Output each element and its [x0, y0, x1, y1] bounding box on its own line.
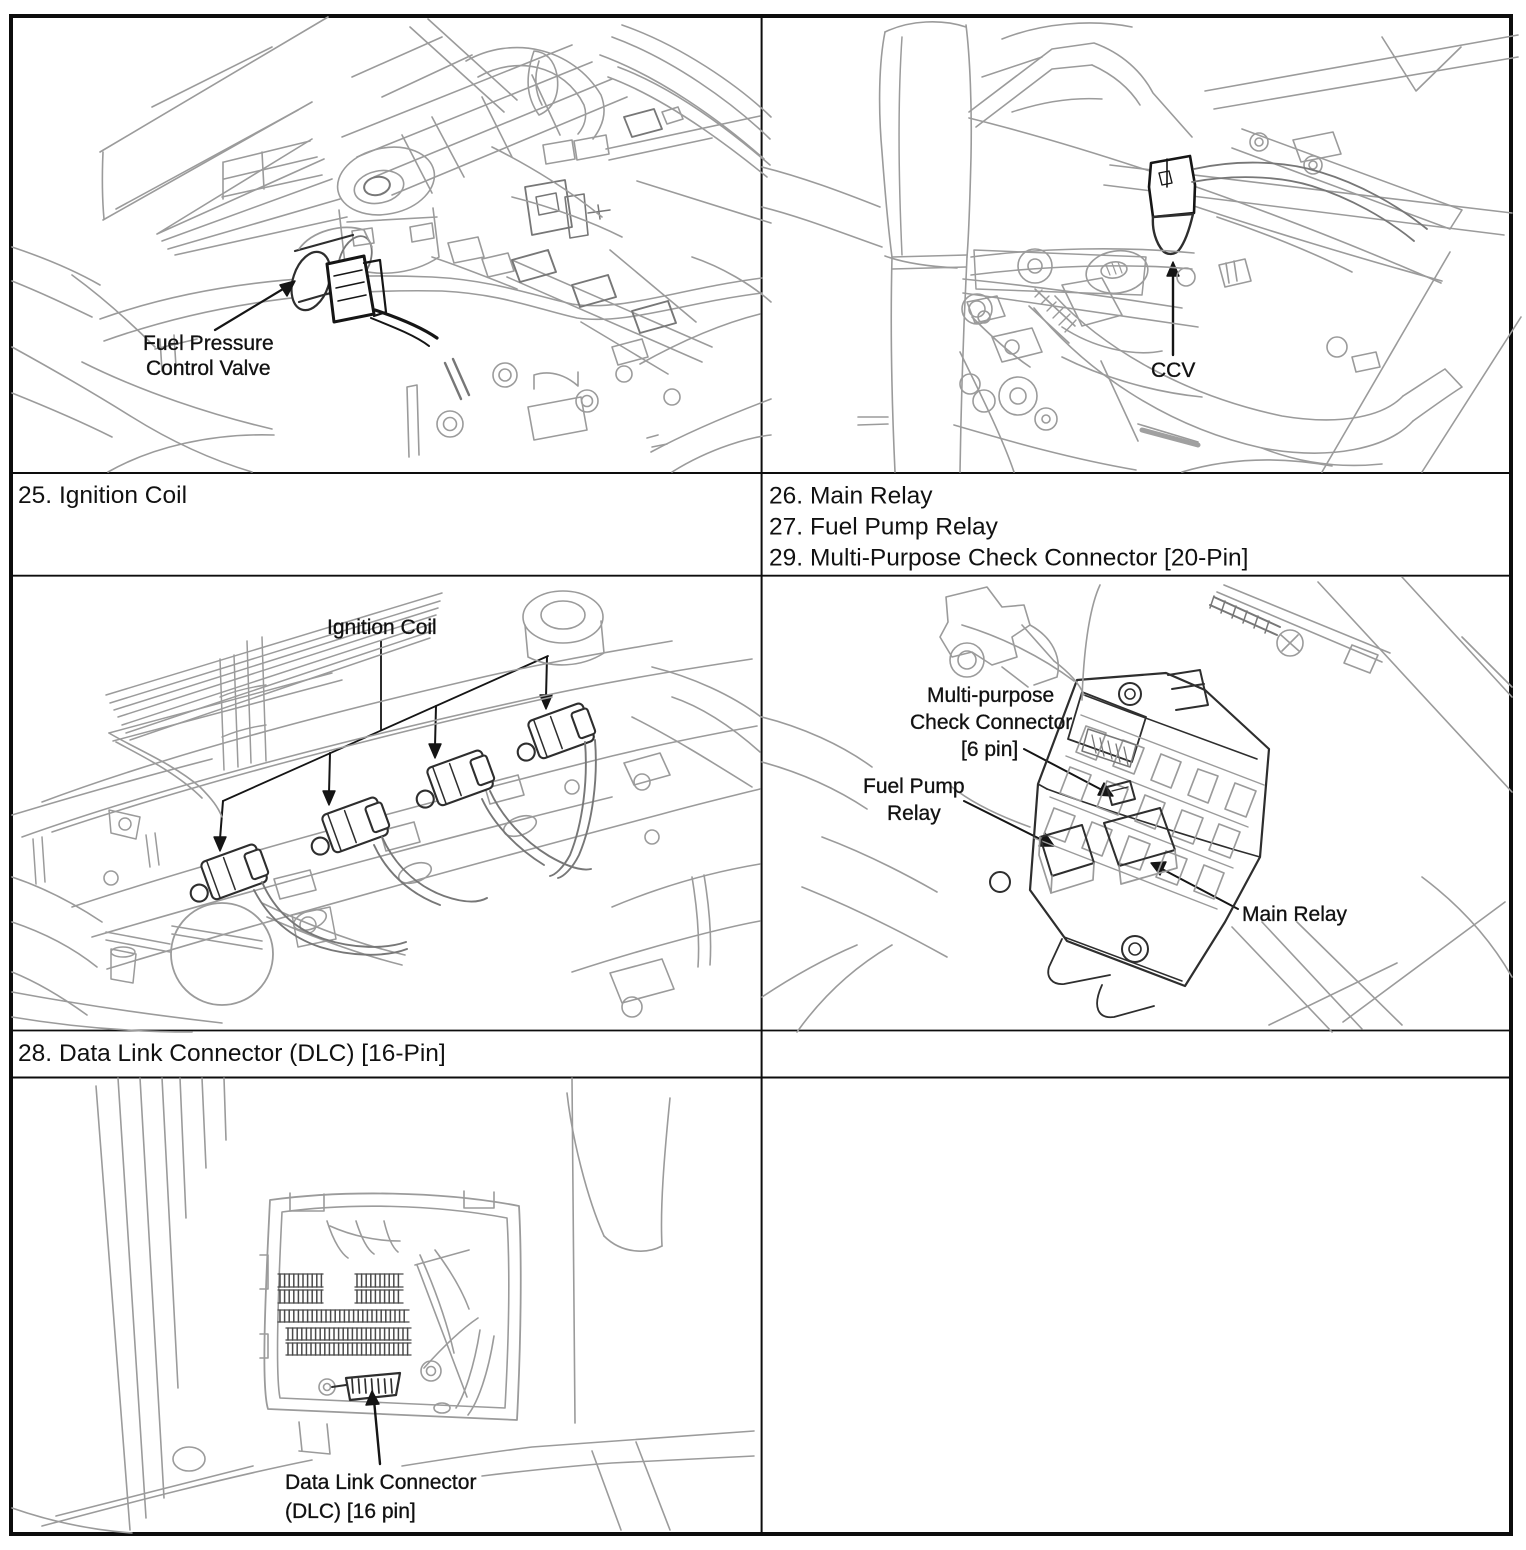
- svg-text:Control Valve: Control Valve: [146, 357, 271, 380]
- svg-text:Multi-Purpose Check Connector: Multi-Purpose Check Connector [20-Pin]: [810, 545, 1248, 572]
- svg-text:(DLC) [16 pin]: (DLC) [16 pin]: [285, 1500, 416, 1523]
- svg-text:Multi-purpose: Multi-purpose: [927, 684, 1054, 707]
- svg-text:Fuel Pump Relay: Fuel Pump Relay: [810, 514, 999, 541]
- svg-text:Relay: Relay: [887, 802, 941, 825]
- svg-text:25.: 25.: [18, 482, 52, 509]
- svg-text:29.: 29.: [769, 545, 803, 572]
- svg-text:Main Relay: Main Relay: [1242, 903, 1348, 926]
- svg-text:28.: 28.: [18, 1040, 52, 1067]
- svg-text:CCV: CCV: [1151, 359, 1195, 382]
- svg-text:Data Link Connector: Data Link Connector: [285, 1471, 476, 1494]
- svg-text:Ignition Coil: Ignition Coil: [59, 482, 187, 509]
- svg-text:Fuel Pump: Fuel Pump: [863, 775, 965, 798]
- svg-text:Fuel Pressure: Fuel Pressure: [143, 332, 274, 355]
- svg-text:Check Connector: Check Connector: [910, 711, 1072, 734]
- svg-text:Data Link Connector (DLC) [16-: Data Link Connector (DLC) [16-Pin]: [59, 1040, 446, 1067]
- svg-text:[6 pin]: [6 pin]: [961, 738, 1018, 761]
- svg-text:Main Relay: Main Relay: [810, 483, 933, 510]
- svg-text:Ignition Coil: Ignition Coil: [327, 616, 437, 639]
- svg-text:26.: 26.: [769, 483, 803, 510]
- svg-text:27.: 27.: [769, 514, 803, 541]
